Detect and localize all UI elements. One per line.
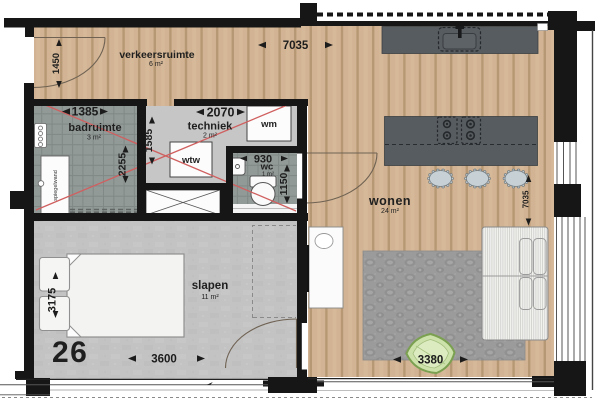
svg-text:1150: 1150 — [278, 172, 290, 195]
svg-text:7035: 7035 — [283, 40, 309, 52]
svg-text:1585: 1585 — [143, 129, 155, 153]
svg-text:badruimte: badruimte — [68, 122, 121, 134]
svg-text:3 m²: 3 m² — [87, 135, 102, 142]
svg-text:1450: 1450 — [51, 53, 62, 74]
svg-text:3380: 3380 — [418, 355, 444, 367]
svg-text:wtw: wtw — [181, 155, 201, 166]
svg-text:2255: 2255 — [117, 153, 129, 177]
svg-text:2 m²: 2 m² — [203, 133, 218, 140]
svg-text:26: 26 — [52, 336, 88, 369]
svg-text:7035: 7035 — [522, 190, 531, 208]
svg-text:1 m²: 1 m² — [262, 172, 274, 178]
svg-text:1385: 1385 — [72, 105, 99, 119]
svg-text:slapen: slapen — [192, 280, 228, 292]
svg-text:wc: wc — [260, 162, 274, 173]
svg-text:2070: 2070 — [207, 106, 235, 120]
svg-text:3175: 3175 — [47, 288, 59, 312]
svg-text:6 m²: 6 m² — [149, 61, 164, 68]
svg-text:3600: 3600 — [151, 354, 177, 366]
svg-text:wm: wm — [260, 119, 277, 130]
svg-text:11 m²: 11 m² — [201, 294, 219, 301]
svg-text:24 m²: 24 m² — [381, 208, 400, 215]
svg-text:spiegelwand: spiegelwand — [53, 170, 59, 201]
svg-text:verkeersruimte: verkeersruimte — [119, 49, 194, 61]
svg-text:techniek: techniek — [188, 121, 234, 133]
svg-text:wonen: wonen — [368, 194, 411, 208]
